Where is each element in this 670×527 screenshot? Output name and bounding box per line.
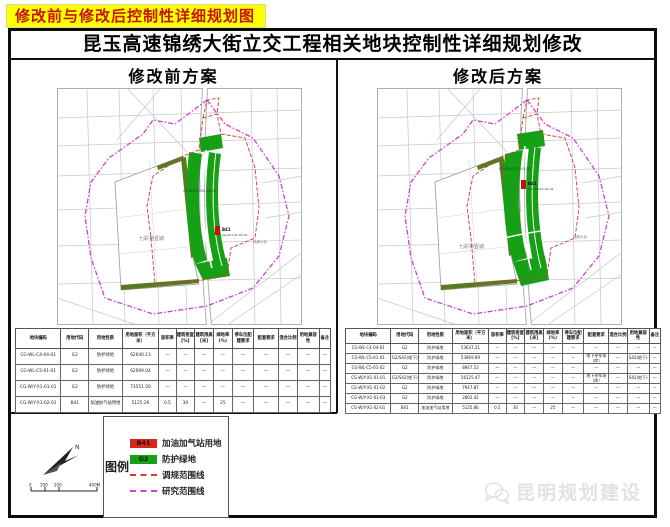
marker-label: B41 [528,181,537,186]
table-cell: G2 [391,364,419,374]
column-divider [336,60,338,413]
table-cell: — [213,349,232,365]
table-cell: — [195,381,214,397]
table-cell: — [489,344,506,354]
column-header: 绿地率(%) [543,329,562,344]
svg-text:N: N [75,444,80,451]
table-cell: — [297,397,319,413]
column-header: 用地代码 [391,329,419,344]
table-cell: — [649,364,660,374]
table-cell: — [232,349,254,365]
north-arrow-icon: N [35,441,93,481]
table-cell: 防护绿地 [419,394,453,404]
table-row: CG-WL-C5-01-01G2防护绿地62099.04————————— [16,365,331,381]
table-cell: CG-WL-C5-01-02 [346,364,391,374]
table-row: CG-W/Y-X1-02-01B41加油加气站用地5125.860.530—25… [346,404,661,414]
table-cell: — [489,384,506,394]
table-cell: — [232,397,254,413]
column-header: 建筑限高[米] [525,329,544,344]
table-cell: — [562,374,584,384]
table-cell: 62640.13 [122,349,159,365]
table-cell: G2/S42(地下) [391,354,419,364]
table-cell: 30 [176,397,195,413]
legend-title: 图例 [104,460,130,475]
table-cell: — [609,354,628,364]
table-cell: CG-W/Y-X1-01-01 [16,381,61,397]
table-cell: — [562,404,584,414]
table-cell: — [195,349,214,365]
table-cell: — [176,381,195,397]
table-cell: G2 [61,365,89,381]
table-cell: G2 [391,384,419,394]
table-cell: — [319,365,330,381]
table-cell: — [506,344,525,354]
map-after: B41 CG-W/Y-X1-02-01 七彩第壹城 CG-WL-C5-01-01… [377,88,622,325]
table-cell: 25 [543,404,562,414]
table-cell: — [213,365,232,381]
table-cell: 防护绿地 [89,349,123,365]
watermark-text: 昆明规划建设 [516,478,642,505]
table-cell: — [159,349,176,365]
table-cell: — [195,365,214,381]
panel-header-before: 修改前方案 [11,63,336,87]
table-cell: — [649,404,660,414]
table-cell: — [525,404,544,414]
table-row: CG-W/Y-X1-01-01G2/S42(地下)防护绿地56125.47———… [346,374,661,384]
table-cell: — [254,349,279,365]
table-cell: — [649,384,660,394]
table-cell: — [649,394,660,404]
table-cell: — [232,381,254,397]
table-cell: 加油加气站用地 [419,404,453,414]
table-cell: 7947.87 [452,384,489,394]
table-cell: 73551.50 [122,381,159,397]
table-cell: — [195,397,214,413]
table-cell: 53869.89 [452,354,489,364]
column-header: 容积率 [159,329,176,349]
column-header: 建筑限高[米] [195,329,214,349]
table-cell: — [627,344,649,354]
table-cell: — [584,364,609,374]
table-cell: 防护绿地 [419,384,453,394]
table-cell: 2802.42 [452,394,489,404]
table-cell: — [609,404,628,414]
table-cell: — [159,381,176,397]
table-after: 地块编码用地代码用地性质用地面积（平方米）容积率建筑密度[%]建筑限高[米]绿地… [345,328,661,414]
table-cell: — [584,394,609,404]
table-cell: 防护绿地 [419,354,453,364]
legend-item-green-land: G2 防护绿地 [130,454,224,465]
street-label: 锦绣大街 [253,239,267,244]
street-label: 锦绣大街 [573,234,587,239]
table-cell: — [254,365,279,381]
table-cell: — [525,364,544,374]
table-cell: 5125.86 [452,404,489,414]
table-cell: G2 [61,381,89,397]
table-cell: — [543,374,562,384]
table-cell: — [627,404,649,414]
table-cell: G2 [391,394,419,404]
table-cell: S42(地下) [627,374,649,384]
svg-text:400M: 400M [89,483,101,488]
table-cell: — [279,349,298,365]
table-cell: CG-W/Y-X1-01-02 [346,384,391,394]
table-cell: — [506,374,525,384]
table-cell: — [319,381,330,397]
table-cell: 5125.26 [122,397,159,413]
table-cell: — [584,404,609,414]
table-cell: — [609,384,628,394]
table-cell: — [489,364,506,374]
table-cell: — [489,374,506,384]
column-header: 建筑密度[%] [506,329,525,344]
column-header: 用地兼容性 [297,329,319,349]
table-cell: — [279,381,298,397]
column-header: 用地代码 [61,329,89,349]
wechat-icon [484,480,510,504]
table-cell: — [159,365,176,381]
table-cell: — [489,394,506,404]
legend-item-adjust-boundary: 调规范围线 [130,470,224,481]
area-label: 七彩第壹城 [139,235,164,242]
page-title: 昆玉高速锦绣大街立交工程相关地块控制性详细规划修改 [11,31,654,60]
gas-station-marker [521,180,526,189]
table-cell: — [562,384,584,394]
column-header: 用地性质 [419,329,453,344]
table-cell: — [297,365,319,381]
table-cell: 防护绿地 [89,381,123,397]
table-cell: 30 [506,404,525,414]
map-before: B41 CG-W/Y-X1-02-01 七彩第壹城 CG-W/Y-X1-01-0… [57,88,302,325]
table-row: CG-W/Y-X1-01-02G2防护绿地7947.87————————— [346,384,661,394]
table-cell: — [543,394,562,404]
table-cell: — [562,364,584,374]
table-row: CG-WL-C5-01-02G2防护绿地8947.53————————— [346,364,661,374]
table-cell: — [609,374,628,384]
table-cell: — [543,364,562,374]
column-header: 停车位配建要求 [232,329,254,349]
table-cell: — [562,354,584,364]
table-cell: — [213,381,232,397]
column-header: 混合比例 [609,329,628,344]
page-banner: 修改前与修改后控制性详细规划图 [6,4,266,28]
column-header: 容积率 [489,329,506,344]
table-cell: — [562,344,584,354]
gas-station-swatch: B41 [130,439,157,448]
column-header: 地块编码 [16,329,61,349]
table-cell: — [297,349,319,365]
table-cell: 25 [213,397,232,413]
table-cell: — [649,374,660,384]
table-cell: — [627,364,649,374]
table-cell: B41 [391,404,419,414]
table-cell: — [254,397,279,413]
table-cell: — [543,384,562,394]
table-cell: CG-W/Y-X1-02-01 [346,404,391,414]
table-cell: — [506,394,525,404]
marker-code-label: CG-W/Y-X1-02-01 [528,187,554,191]
table-cell: — [254,381,279,397]
marker-label: B41 [222,227,231,232]
table-cell: — [609,344,628,354]
column-header: 备注 [319,329,330,349]
table-row: CG-WL-C4-04-01G2防护绿地62640.13————————— [16,349,331,365]
table-cell: — [525,374,544,384]
table-cell: CG-WL-C5-01-01 [16,365,61,381]
column-header: 备注 [649,329,660,344]
table-cell: 防护绿地 [89,365,123,381]
table-cell: — [319,349,330,365]
column-header: 停车位配建要求 [562,329,584,344]
svg-text:100: 100 [40,483,48,488]
table-row: CG-W/Y-X1-01-01G2防护绿地73551.50————————— [16,381,331,397]
table-cell: CG-WL-C5-01-01 [346,354,391,364]
research-boundary-swatch [130,490,157,492]
table-row: CG-WL-C5-01-01G2/S42(地下)防护绿地53869.89————… [346,354,661,364]
svg-text:0: 0 [29,483,32,488]
table-cell: — [649,344,660,354]
gas-station-marker [215,226,220,235]
table-cell: — [627,384,649,394]
table-cell: — [543,354,562,364]
table-row: CG-WL-C4-04-01G2防护绿地53637.21————————— [346,344,661,354]
table-cell: — [176,349,195,365]
table-row: CG-W/Y-X1-02-01B41加油加气站用地5125.260.530—25… [16,397,331,413]
table-cell: — [627,394,649,404]
green-land-swatch: G2 [130,455,157,464]
table-cell: — [543,344,562,354]
table-cell: S42(地下) [627,354,649,364]
table-cell: — [562,394,584,404]
table-cell: 防护绿地 [419,374,453,384]
table-cell: — [584,344,609,354]
table-cell: — [279,397,298,413]
table-cell: 防护绿地 [419,344,453,354]
column-header: 绿地率(%) [213,329,232,349]
column-header: 用地面积（平方米） [452,329,489,344]
table-cell: 0.5 [489,404,506,414]
table-cell: — [506,384,525,394]
column-header: 混合比例 [279,329,298,349]
table-cell: — [649,354,660,364]
table-cell: — [319,397,330,413]
table-cell: — [176,365,195,381]
table-row: CG-W/Y-X1-01-03G2防护绿地2802.42————————— [346,394,661,404]
table-cell: — [525,384,544,394]
table-cell: 地下停车场（库） [584,354,609,364]
legend-item-research-boundary: 研究范围线 [130,486,224,497]
table-cell: — [489,354,506,364]
marker-code-label: CG-W/Y-X1-02-01 [222,233,248,237]
table-cell: — [506,354,525,364]
column-header: 建筑密度[%] [176,329,195,349]
table-cell: — [609,394,628,404]
column-header: 用地兼容性 [627,329,649,344]
adjust-boundary-swatch [130,474,157,476]
table-cell: CG-W/Y-X1-01-01 [346,374,391,384]
table-cell: — [609,364,628,374]
table-cell: CG-WL-C4-04-01 [346,344,391,354]
table-cell: — [525,394,544,404]
panel-header-after: 修改后方案 [338,63,658,87]
table-cell: G2 [61,349,89,365]
column-header: 用地性质 [89,329,123,349]
table-cell: — [506,364,525,374]
column-header: 地块编码 [346,329,391,344]
table-cell: 地下停车场（库） [584,374,609,384]
table-cell: G2/S42(地下) [391,374,419,384]
column-header: 配套要求 [254,329,279,349]
table-cell: 0.5 [159,397,176,413]
legend: 图例 B41 加油加气站用地 G2 防护绿地 调规范围线 研究范围线 [103,416,229,518]
scale-bar: 0 100 200 400M [27,483,103,497]
plan-sheet: 昆玉高速锦绣大街立交工程相关地块控制性详细规划修改 修改前方案 修改后方案 [8,28,657,518]
table-cell: G2 [391,344,419,354]
watermark: 昆明规划建设 [484,478,642,505]
table-cell: — [525,354,544,364]
column-header: 配套要求 [584,329,609,344]
table-cell: 防护绿地 [419,364,453,374]
table-cell: — [232,365,254,381]
table-cell: 8947.53 [452,364,489,374]
table-cell: CG-W/Y-X1-02-01 [16,397,61,413]
table-cell: — [297,381,319,397]
svg-text:200: 200 [54,483,62,488]
table-cell: CG-WL-C4-04-01 [16,349,61,365]
table-cell: 56125.47 [452,374,489,384]
table-cell: — [525,344,544,354]
table-before: 地块编码用地代码用地性质用地面积（平方米）容积率建筑密度[%]建筑限高[米]绿地… [15,328,331,413]
column-header: 用地面积（平方米） [122,329,159,349]
green-code-label: CG-WL-C5-01-01 G2 [499,167,531,171]
table-cell: — [279,365,298,381]
table-cell: B41 [61,397,89,413]
table-cell: 62099.04 [122,365,159,381]
table-cell: CG-W/Y-X1-01-03 [346,394,391,404]
table-cell: — [584,384,609,394]
legend-item-gas-station: B41 加油加气站用地 [130,438,224,449]
table-cell: 53637.21 [452,344,489,354]
area-label: 七彩第壹城 [459,243,484,250]
table-cell: 加油加气站用地 [89,397,123,413]
